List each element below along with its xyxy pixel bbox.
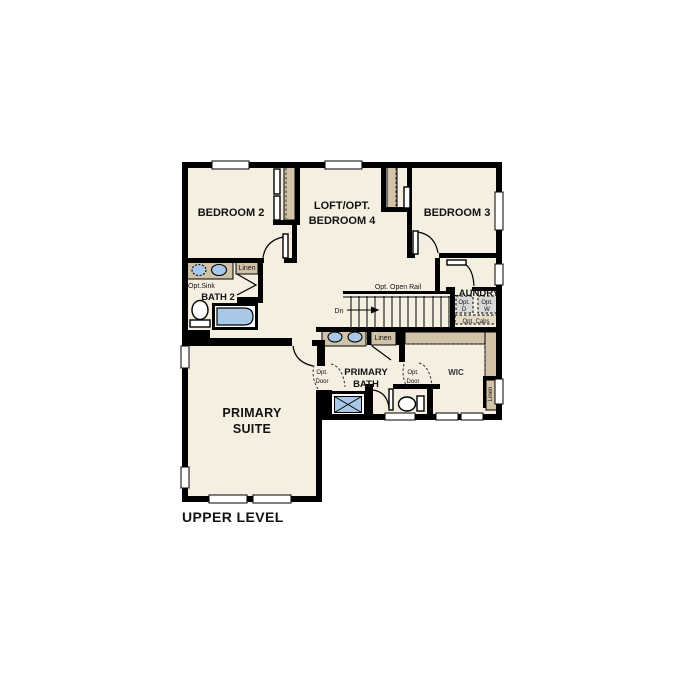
bath2-linen-label: Linen xyxy=(238,265,255,272)
sink-bowl xyxy=(212,265,227,276)
primary-suite-label-line1: PRIMARY xyxy=(222,406,282,420)
opt-door-right-label-line2: Door xyxy=(406,379,419,385)
opt-cabs-label: Opt. Cabs xyxy=(462,319,489,325)
bedroom3-label: BEDROOM 3 xyxy=(424,207,491,219)
window xyxy=(461,413,483,420)
window xyxy=(181,467,189,488)
opt-dryer-label-line1: Opt. xyxy=(458,300,470,306)
floor-plan-drawing: BEDROOM 2 LOFT/OPT. BEDROOM 4 BEDROOM 3 … xyxy=(0,0,687,687)
bathtub xyxy=(217,308,253,325)
bedroom2-door-leaf xyxy=(283,234,288,258)
optional-sink-bowl xyxy=(192,265,206,276)
opt-sink-label: Opt.Sink xyxy=(188,283,215,290)
plan-title: UPPER LEVEL xyxy=(182,509,284,525)
window xyxy=(181,346,189,368)
window xyxy=(495,379,503,404)
opt-washer-label-line1: Opt. xyxy=(481,300,493,306)
window xyxy=(209,495,247,503)
wic-label: WIC xyxy=(448,368,464,377)
primary-suite-label-line2: SUITE xyxy=(233,422,271,436)
laundry-label: LAUNDRY xyxy=(453,288,500,299)
opt-open-rail-label: Opt. Open Rail xyxy=(375,284,422,291)
opt-door-right-label-line1: Opt. xyxy=(407,370,419,376)
bedroom2-label: BEDROOM 2 xyxy=(198,207,265,219)
floor-plan-upper-level: BEDROOM 2 LOFT/OPT. BEDROOM 4 BEDROOM 3 … xyxy=(0,0,687,687)
loft-closet-door-leaf xyxy=(404,187,410,208)
primary-linen-label: Linen xyxy=(374,335,391,342)
window xyxy=(495,264,503,285)
opt-washer-label-line2: W xyxy=(484,307,490,313)
wic-shelf-top xyxy=(405,332,497,344)
water-closet-door-leaf xyxy=(389,389,393,410)
window xyxy=(325,161,362,169)
bath2-toilet-bowl xyxy=(192,301,208,320)
opt-door-left-label-line2: Door xyxy=(315,379,328,385)
window xyxy=(253,495,291,503)
primary-bath-label-line2: BATH xyxy=(353,379,379,390)
window xyxy=(212,161,249,169)
primary-sink-bowl-left xyxy=(328,332,342,342)
window xyxy=(436,413,458,420)
window xyxy=(385,413,415,420)
bedroom3-door-leaf xyxy=(413,231,418,254)
laundry-door-leaf xyxy=(447,260,466,265)
window xyxy=(495,192,503,230)
closet-door-leaf xyxy=(274,196,280,220)
primary-bath-label-line1: PRIMARY xyxy=(344,367,388,378)
wic-shelf-right xyxy=(485,332,497,378)
opt-dryer-label-line2: D xyxy=(462,307,467,313)
bath2-label: BATH 2 xyxy=(201,292,235,303)
stairs-down-label: Dn xyxy=(335,308,344,315)
primary-sink-bowl-right xyxy=(348,332,362,342)
loft-label-line1: LOFT/OPT. xyxy=(314,200,370,212)
stair-rail xyxy=(343,291,450,294)
primary-toilet-tank xyxy=(417,396,424,411)
bath2-toilet-tank xyxy=(190,320,210,327)
primary-toilet-bowl xyxy=(399,397,416,411)
closet-door-leaf xyxy=(274,169,280,194)
wic-linen-label: Linen xyxy=(488,387,494,402)
loft-label-line2: BEDROOM 4 xyxy=(309,215,377,227)
opt-door-left-label-line1: Opt. xyxy=(316,370,328,376)
